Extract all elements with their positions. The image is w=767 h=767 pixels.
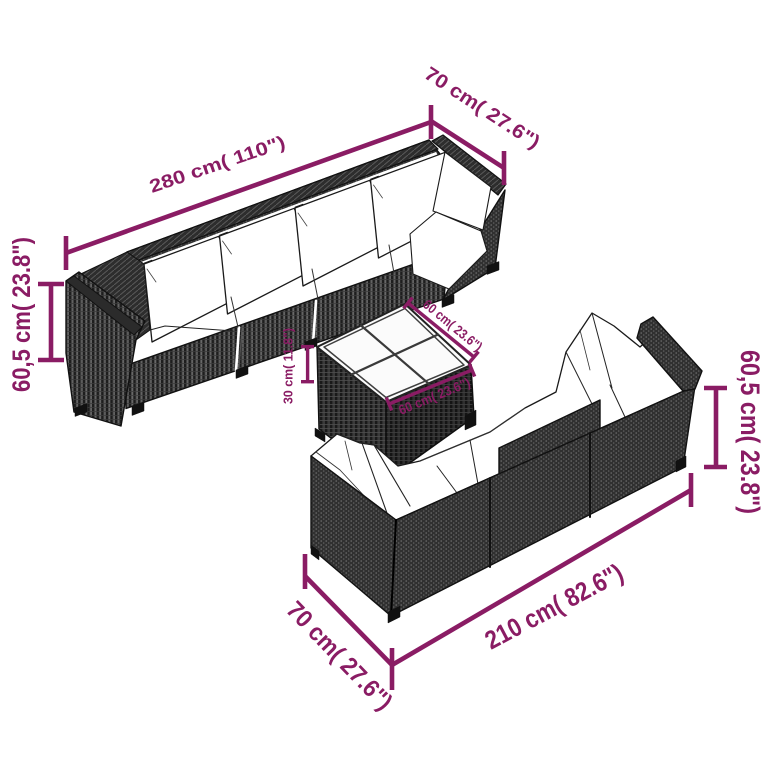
svg-text:30 cm( 11.8"): 30 cm( 11.8") [281,328,296,404]
svg-text:60,5 cm( 23.8"): 60,5 cm( 23.8") [8,237,36,392]
svg-text:60,5 cm( 23.8"): 60,5 cm( 23.8") [735,350,765,514]
